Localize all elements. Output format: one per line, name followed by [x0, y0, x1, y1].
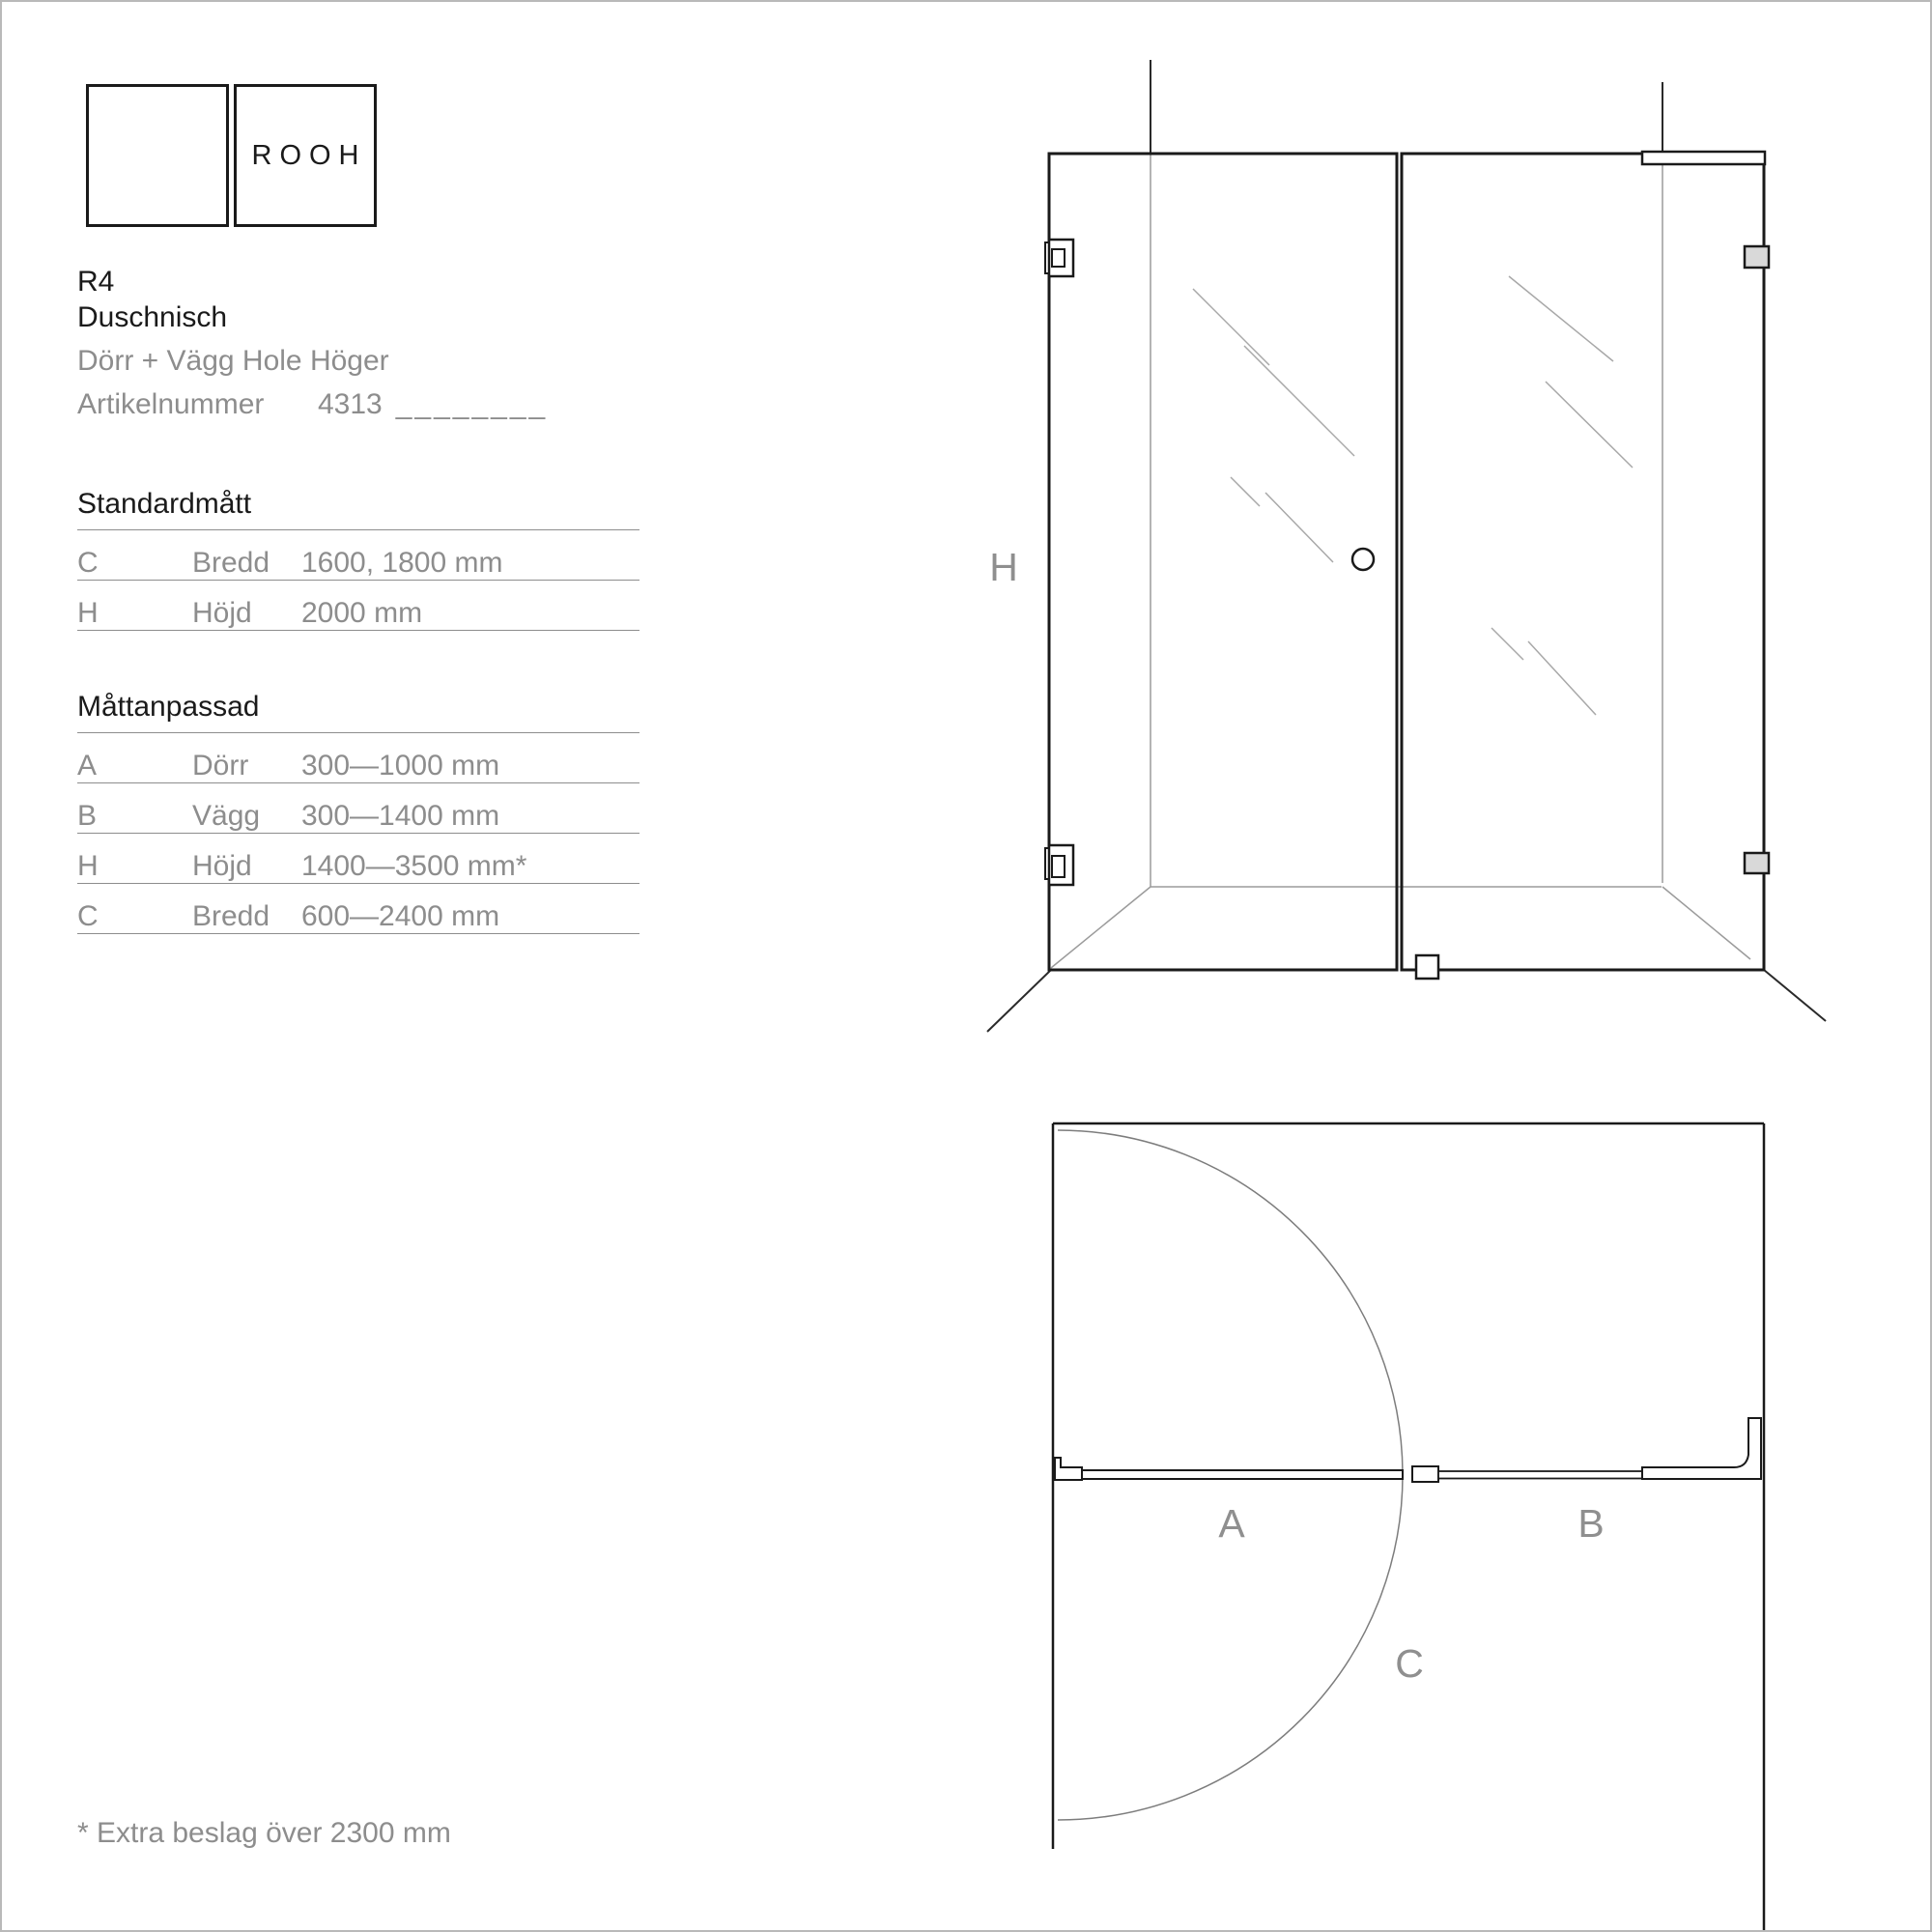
- door-glass-reflections: [1193, 289, 1354, 562]
- wall-glass-reflections: [1492, 276, 1633, 715]
- door-width-label: A: [1198, 1504, 1265, 1544]
- elevation-drawing: [987, 60, 1826, 1032]
- plan-door-hinge: [1055, 1458, 1082, 1480]
- plan-wall-profile: [1642, 1418, 1761, 1479]
- floor-corner-line-right-inner: [1662, 887, 1750, 959]
- technical-drawings: [2, 2, 1932, 1932]
- floor-corner-line-left-inner: [1051, 887, 1151, 968]
- plan-mid-clamp: [1412, 1466, 1438, 1482]
- door-knob: [1352, 549, 1374, 570]
- plan-drawing: [1053, 1123, 1764, 1930]
- wall-clamp-bottom: [1745, 853, 1769, 873]
- wall-width-label: B: [1557, 1504, 1625, 1544]
- bottom-clamp: [1416, 955, 1438, 979]
- floor-corner-line-right-outer: [1764, 970, 1826, 1021]
- plan-wall-glass: [1438, 1471, 1642, 1479]
- spec-sheet-page: ROOH R4 Duschnisch Dörr + Vägg Hole Höge…: [0, 0, 1932, 1932]
- height-label: H: [970, 548, 1037, 587]
- door-glass-panel: [1049, 154, 1397, 970]
- total-width-label: C: [1376, 1644, 1443, 1684]
- plan-door-glass: [1082, 1470, 1403, 1479]
- wall-clamp-top: [1745, 246, 1769, 268]
- floor-corner-line-left-outer: [987, 970, 1051, 1032]
- door-hinge-bottom: [1045, 845, 1073, 885]
- wall-glass-panel: [1402, 154, 1764, 970]
- door-hinge-top: [1045, 240, 1073, 276]
- wall-bracket-top: [1642, 152, 1765, 164]
